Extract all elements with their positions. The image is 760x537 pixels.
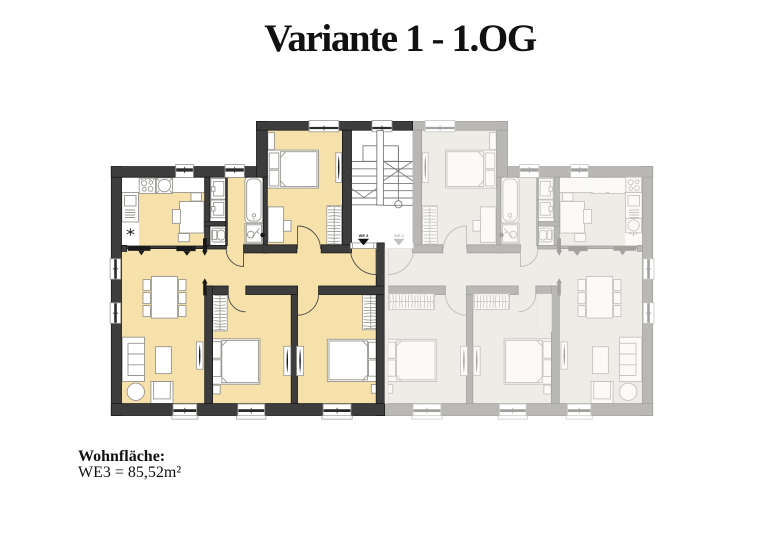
svg-text:WE 3: WE 3 [359, 233, 370, 238]
svg-text:WE 4: WE 4 [394, 233, 405, 238]
